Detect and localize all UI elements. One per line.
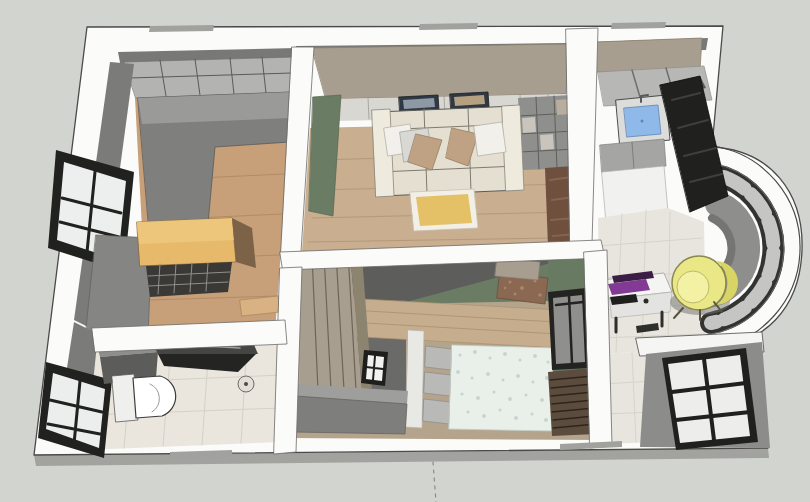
living-taupe-soffit [312,44,568,99]
bed-pillow-1 [425,346,452,370]
desk-mouse [644,299,649,304]
sofa-pillow-white-2 [474,122,506,156]
slab-tick-top-3 [611,22,666,29]
tub-chair-seat [677,271,709,303]
toilet-bowl [133,376,176,418]
sink-drain-dot [641,120,644,123]
bed-pillow-2 [424,372,451,396]
shelf-box-2 [540,134,554,150]
shelf-box-1 [522,117,536,133]
slab-tick-top-2 [419,23,478,30]
bed-duvet [449,345,556,431]
wall-band-living-kitchen [566,28,598,246]
floorplan-svg [0,0,810,502]
axis-dotted-line [433,462,436,502]
oak-desk-highlight [137,218,234,244]
rug-center [416,194,472,226]
slab-tick-top-1 [149,25,214,32]
bed-rail-left [406,330,424,428]
floor-drain-dot [244,382,248,386]
floorplan-viewport [0,0,810,502]
bed-pillow-3 [423,399,450,424]
